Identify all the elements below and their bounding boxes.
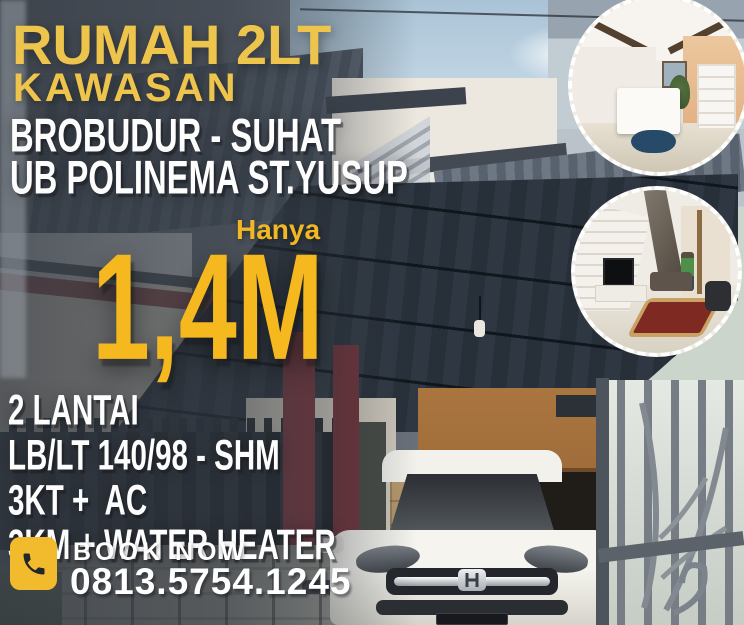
inset-dark-chair — [705, 281, 731, 310]
inset-blue-ottoman — [631, 130, 676, 153]
location-line-2: UB POLINEMA ST.YUSUP — [10, 152, 408, 205]
inset-door-frame — [697, 210, 702, 295]
inset-tv — [603, 258, 634, 286]
inset-shelf — [697, 64, 735, 130]
interior-photo-living-room — [568, 0, 744, 176]
phone-number[interactable]: 0813.5754.1245 — [70, 561, 352, 603]
inset-sofa — [650, 272, 692, 292]
inset-tv-cabinet — [595, 285, 647, 303]
interior-photo-tv-room — [571, 186, 742, 357]
spec-land-building: LB/LT 140/98 - SHM — [8, 433, 336, 478]
area-label: KAWASAN — [13, 66, 238, 111]
inset-table — [617, 88, 680, 133]
property-ad-poster: RUMAH 2LT KAWASAN BROBUDUR - SUHAT UB PO… — [0, 0, 744, 625]
phone-icon — [20, 550, 48, 578]
price-value: 1,4M — [92, 232, 324, 383]
phone-icon-box[interactable] — [10, 537, 57, 590]
spec-bedrooms: 3KT + AC — [8, 478, 336, 523]
spec-floors: 2 LANTAI — [8, 388, 336, 433]
